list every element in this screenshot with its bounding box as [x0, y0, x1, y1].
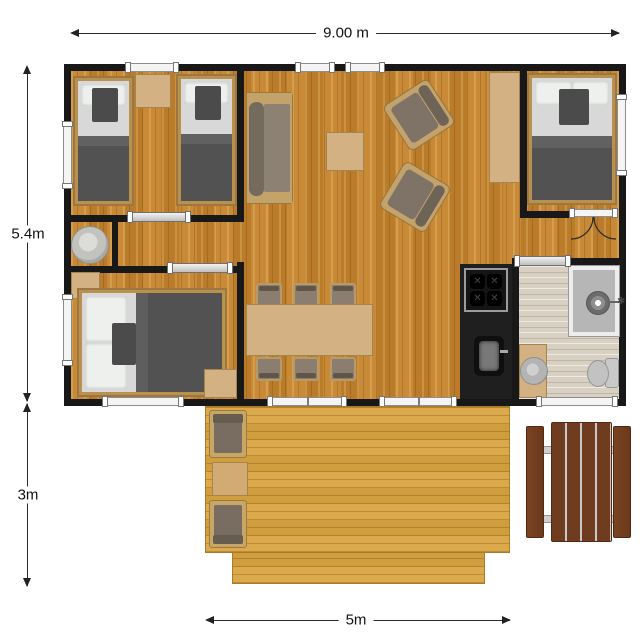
sofa-seat: [264, 104, 290, 192]
wall-bedroomR-south: [520, 211, 572, 218]
wall-living-divider-lower: [237, 262, 244, 399]
cabinet: [204, 369, 237, 398]
sliding-glass-door-1: [268, 397, 346, 406]
blanket: [532, 136, 612, 200]
deck-armchair-2: [209, 500, 247, 548]
picnic-bench-left: [526, 426, 544, 538]
french-door-swing-icon: [570, 216, 617, 243]
wall-niche-east: [112, 215, 118, 273]
stove-burner: [470, 274, 485, 289]
wall-bedroomB-north-b: [232, 266, 244, 273]
dining-chair: [293, 357, 319, 381]
window-bathroom-bottom: [537, 397, 617, 406]
dimension-label-deck-depth: 3m: [11, 487, 46, 504]
wall-bathroom-north: [570, 258, 619, 265]
shower: ✱: [569, 266, 619, 336]
window-bedroomB-left: [63, 295, 72, 365]
shower-head-icon: [586, 291, 610, 315]
deck-armchair-1: [209, 410, 247, 458]
picnic-table-top: [551, 422, 612, 542]
dimension-label-overall-width: 9.00 m: [316, 25, 376, 42]
water-heater: [71, 226, 109, 264]
cushion: [92, 88, 118, 122]
coffee-table: [326, 132, 364, 171]
floor-plan: ✱: [0, 0, 640, 640]
sideboard: [489, 72, 520, 183]
faucet-icon: [500, 350, 508, 353]
toilet: [587, 360, 609, 387]
blanket: [78, 136, 129, 201]
blanket: [181, 134, 232, 201]
sliding-glass-door-2: [380, 397, 456, 406]
bedside-table: [135, 74, 171, 108]
window-twinroom-left: [63, 122, 72, 188]
stove: [464, 268, 508, 312]
washbasin: [520, 357, 548, 385]
dining-chair: [330, 357, 356, 381]
picnic-table: [519, 422, 636, 543]
wall-twinroom-south-a: [71, 215, 128, 222]
dimension-label-deck-width: 5m: [339, 612, 374, 629]
dimension-label-house-depth: 5.4m: [4, 226, 51, 243]
sliding-door-twinroom: [128, 212, 190, 222]
cushion: [195, 86, 221, 120]
deck-step: [232, 553, 485, 584]
sofa-back: [249, 102, 264, 196]
window-twinroom-top: [126, 63, 178, 72]
window-bedroomB-bottom: [103, 397, 183, 406]
shower-valve-icon: ✱: [617, 297, 625, 307]
deck-side-table: [212, 462, 248, 496]
stove-burner: [487, 291, 502, 306]
wall-twinroom-south-b: [190, 215, 244, 222]
picnic-bench-right: [613, 426, 631, 538]
wall-living-divider-upper: [237, 71, 244, 222]
window-bedroomR-right: [617, 95, 626, 175]
window-living-top-1: [296, 63, 334, 72]
double-bed-right: [527, 73, 617, 205]
single-bed-2: [176, 74, 237, 206]
sofa: [246, 92, 293, 204]
single-bed-1: [73, 76, 134, 206]
deck-chair-back: [213, 535, 243, 544]
deck-chair-back: [213, 414, 243, 423]
dining-table: [246, 304, 373, 356]
cushion: [112, 323, 136, 365]
stove-burner: [487, 274, 502, 289]
window-living-top-2: [346, 63, 384, 72]
kitchen-sink: [474, 336, 504, 376]
wall-bedroomR-west: [520, 71, 527, 218]
sliding-door-bathroom: [515, 256, 570, 266]
deck: [205, 406, 510, 553]
cushion: [559, 89, 589, 125]
dining-chair: [256, 357, 282, 381]
stove-burner: [470, 291, 485, 306]
wall-bathroom-west: [512, 258, 519, 399]
sliding-door-bedroomB: [168, 263, 232, 273]
